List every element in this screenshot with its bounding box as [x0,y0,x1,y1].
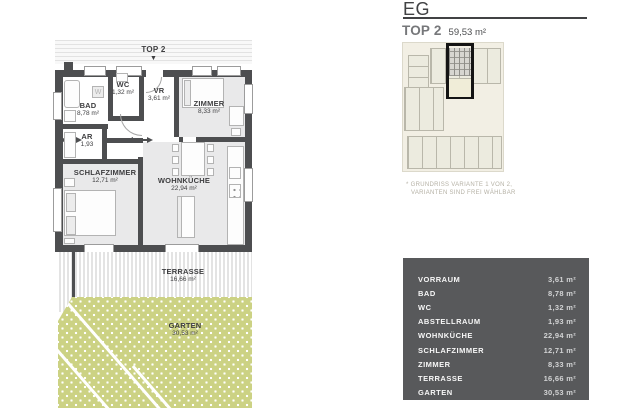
area-table-row: WOHNKÜCHE 22,94 m² [418,329,576,343]
window [192,66,212,76]
row-label: WOHNKÜCHE [418,331,473,340]
washing-machine-label: W [95,89,102,96]
room-label-wohnkueche: WOHNKÜCHE 22,94 m² [142,176,226,193]
floor-label: EG [403,0,430,18]
site-plan-highlight-garden [449,78,471,97]
sofa-back [177,196,182,238]
floor-plan: TOP 2 ▼ [0,0,320,410]
chair [172,156,179,164]
room-label-terrasse: TERRASSE 16,66 m² [141,267,225,284]
window [217,66,241,76]
unit-marker: TOP 2 ▼ [55,40,252,66]
info-panel: EG TOP 2 59,53 m² * GRUNDRISS VARIANTE 1… [395,0,620,410]
pillow [66,193,76,212]
room-name: BAD [62,101,114,110]
row-value: 3,61 m² [548,275,576,284]
plan-note-line2: VARIANTEN SIND FREI WÄHLBAR [406,190,566,198]
room-area: 3,61 m² [138,95,180,103]
plan-note-line1: * GRUNDRISS VARIANTE 1 VON 2, [406,182,566,190]
room-name: ZIMMER [178,99,240,108]
chair [207,168,214,176]
row-value: 1,93 m² [548,317,576,326]
garden-boundary-line [58,335,131,408]
nightstand [64,238,75,244]
room-area: 1,93 [67,141,107,149]
area-table-row: GARTEN 30,53 m² [418,386,576,400]
room-area: 8,78 m² [62,110,114,118]
row-value: 8,33 m² [548,360,576,369]
garden-boundary-line [64,299,165,408]
wall [63,159,143,164]
area-table-row: BAD 8,78 m² [418,286,576,300]
unit-title-row: TOP 2 59,53 m² [402,23,486,38]
room-area: 30,53 m² [143,330,227,338]
dining-table [181,142,205,176]
area-table-row: WC 1,32 m² [418,300,576,314]
area-table-row: ABSTELLRAUM 1,93 m² [418,315,576,329]
stove [229,184,241,198]
row-value: 8,78 m² [548,289,576,298]
room-area: 16,66 m² [141,276,225,284]
unit-total-area: 59,53 m² [449,27,487,38]
room-label-zimmer: ZIMMER 8,33 m² [178,99,240,116]
unit-title: TOP 2 [402,23,442,38]
room-area: 8,33 m² [178,108,240,116]
site-plan-highlight-unit [449,48,471,76]
window [244,84,253,114]
divider-line [403,17,587,19]
row-label: SCHLAFZIMMER [418,346,484,355]
chair [172,168,179,176]
site-plan-highlight [446,43,474,99]
room-name: WC [103,80,143,89]
area-table-row: ZIMMER 8,33 m² [418,357,576,371]
window [84,66,106,76]
window [244,168,253,202]
room-label-vr: VR 3,61 m² [138,86,180,103]
row-value: 30,53 m² [544,388,576,397]
area-table-row: SCHLAFZIMMER 12,71 m² [418,343,576,357]
site-plan-building [404,87,444,131]
garden-area [58,297,252,408]
terrace-divider [72,252,75,297]
room-name: WOHNKÜCHE [142,176,226,185]
room-label-wc: WC 1,32 m² [103,80,143,97]
chair [207,156,214,164]
area-table-row: VORRAUM 3,61 m² [418,272,576,286]
room-name: TERRASSE [141,267,225,276]
row-value: 22,94 m² [544,331,576,340]
entrance-door-opening [146,70,163,77]
room-label-bad: BAD 8,78 m² [62,101,114,118]
pillow [66,216,76,235]
row-label: GARTEN [418,388,453,397]
chair [231,128,241,136]
marker-arrow-icon: ▼ [150,55,157,62]
unit-marker-label: TOP 2 [141,45,165,55]
room-name: AR [67,132,107,141]
row-label: VORRAUM [418,275,460,284]
row-value: 12,71 m² [544,346,576,355]
chair [172,144,179,152]
site-plan [402,42,504,172]
room-name: VR [138,86,180,95]
kitchen-sink [229,167,241,179]
row-label: ZIMMER [418,360,451,369]
window [53,92,62,120]
room-area: 12,71 m² [60,177,150,185]
floorplan-sheet: TOP 2 ▼ [0,0,620,410]
door-swing-arrow [132,139,148,141]
row-value: 1,32 m² [548,303,576,312]
area-table-row: TERRASSE 16,66 m² [418,371,576,385]
chair [207,144,214,152]
room-label-ar: AR 1,93 [67,132,107,149]
room-name: SCHLAFZIMMER [60,168,150,177]
room-label-schlafzimmer: SCHLAFZIMMER 12,71 m² [60,168,150,185]
row-label: ABSTELLRAUM [418,317,481,326]
row-value: 16,66 m² [544,374,576,383]
row-label: BAD [418,289,436,298]
room-area: 22,94 m² [142,185,226,193]
room-area: 1,32 m² [103,89,143,97]
wall [56,124,108,129]
row-label: TERRASSE [418,374,463,383]
row-label: WC [418,303,432,312]
window [53,188,62,232]
plan-note: * GRUNDRISS VARIANTE 1 VON 2, VARIANTEN … [406,182,566,197]
room-name: GARTEN [143,321,227,330]
site-plan-building [407,136,502,169]
area-table: VORRAUM 3,61 m² BAD 8,78 m² WC 1,32 m² A… [403,258,589,400]
room-label-garten: GARTEN 30,53 m² [143,321,227,338]
